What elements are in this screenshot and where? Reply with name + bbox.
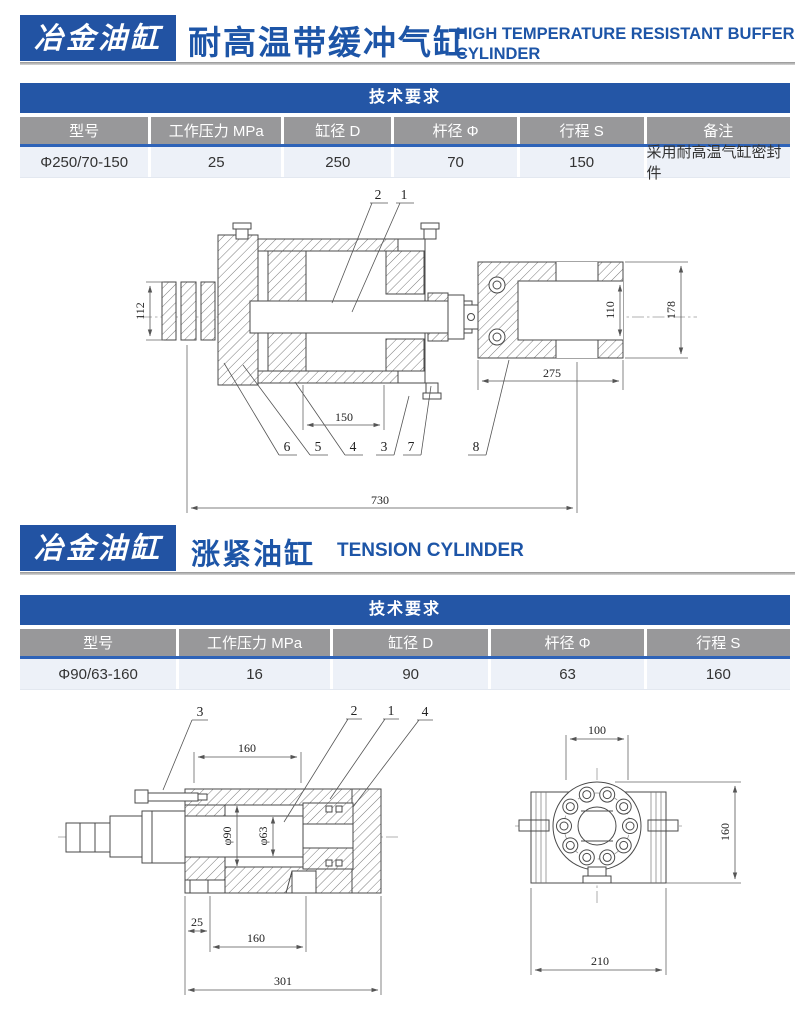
table1-cell-stroke: 150 <box>520 147 644 177</box>
tension-cylinder-drawings: 3 2 1 4 160 φ90 φ63 25 160 301 <box>0 700 810 1005</box>
spec-table-2: 技术要求 型号 工作压力 MPa 缸径 D 杆径 Φ 行程 S Φ90/63-1… <box>20 595 790 690</box>
table2-cell-pressure: 16 <box>179 659 330 689</box>
tension-cylinder-end-view <box>515 768 682 905</box>
spec-table-1: 技术要求 型号 工作压力 MPa 缸径 D 杆径 Φ 行程 S 备注 Φ250/… <box>20 83 790 178</box>
dim-178: 178 <box>664 301 678 319</box>
dim-301: 301 <box>274 974 292 988</box>
table1-cell-model: Φ250/70-150 <box>20 147 148 177</box>
dim-210: 210 <box>591 954 609 968</box>
table1-header-row: 型号 工作压力 MPa 缸径 D 杆径 Φ 行程 S 备注 <box>20 117 790 144</box>
dim-110: 110 <box>603 301 617 319</box>
buffer-cylinder-section-drawing: 2 1 6 5 4 3 7 8 112 110 178 <box>0 180 810 515</box>
dim-150: 150 <box>335 410 353 424</box>
table1-col-pressure: 工作压力 MPa <box>151 117 281 144</box>
dim-730: 730 <box>371 493 389 507</box>
part-label-3: 3 <box>381 439 388 454</box>
dim-top-160: 160 <box>238 741 256 755</box>
table2-cell-rod: 63 <box>491 659 643 689</box>
table2-col-rod: 杆径 Φ <box>491 629 643 656</box>
table2-col-bore: 缸径 D <box>333 629 488 656</box>
dim-bottom-160: 160 <box>247 931 265 945</box>
table2-data-row: Φ90/63-160 16 90 63 160 <box>20 659 790 690</box>
section1-title-cn: 耐高温带缓冲气缸 <box>188 16 468 64</box>
dim-112: 112 <box>133 302 147 320</box>
catalog-page: 冶金油缸 耐高温带缓冲气缸 HIGH TEMPERATURE RESISTANT… <box>0 0 810 1010</box>
dim-275: 275 <box>543 366 561 380</box>
table1-cell-rod: 70 <box>394 147 516 177</box>
table2-title-bar: 技术要求 <box>20 595 790 625</box>
part-label-3: 3 <box>197 704 204 719</box>
dim-rod-63: φ63 <box>256 827 270 846</box>
dim-160: 160 <box>718 823 732 841</box>
part-label-2: 2 <box>351 703 358 718</box>
table2-cell-bore: 90 <box>333 659 488 689</box>
table1-col-bore: 缸径 D <box>284 117 391 144</box>
series-badge-1: 冶金油缸 <box>20 15 176 61</box>
section2-title-en: TENSION CYLINDER <box>337 540 524 562</box>
series-badge-2: 冶金油缸 <box>20 525 176 571</box>
table1-data-row: Φ250/70-150 25 250 70 150 采用耐高温气缸密封件 <box>20 147 790 178</box>
table1-title-bar: 技术要求 <box>20 83 790 113</box>
part-label-5: 5 <box>315 439 322 454</box>
table2-col-stroke: 行程 S <box>647 629 790 656</box>
table1-cell-pressure: 25 <box>151 147 281 177</box>
dim-bore-90: φ90 <box>220 827 234 846</box>
section2-title-cn: 涨紧油缸 <box>191 531 315 573</box>
table1-col-model: 型号 <box>20 117 148 144</box>
table1-col-remark: 备注 <box>647 117 790 144</box>
section1-header-rule <box>20 62 795 65</box>
table1-cell-bore: 250 <box>284 147 391 177</box>
dim-25: 25 <box>191 915 203 929</box>
table1-col-rod: 杆径 Φ <box>394 117 516 144</box>
part-label-2: 2 <box>375 187 382 202</box>
part-label-4: 4 <box>350 439 357 454</box>
part-label-6: 6 <box>284 439 291 454</box>
part-label-7: 7 <box>408 439 415 454</box>
table2-col-pressure: 工作压力 MPa <box>179 629 330 656</box>
part-label-1: 1 <box>388 703 395 718</box>
table2-cell-stroke: 160 <box>647 659 790 689</box>
dim-100: 100 <box>588 723 606 737</box>
section1-title-en: HIGH TEMPERATURE RESISTANT BUFFER CYLIND… <box>456 24 804 64</box>
table1-col-stroke: 行程 S <box>520 117 644 144</box>
part-label-4: 4 <box>422 704 429 719</box>
section2-header-rule <box>20 572 795 575</box>
table2-cell-model: Φ90/63-160 <box>20 659 176 689</box>
table1-cell-remark: 采用耐高温气缸密封件 <box>647 147 790 177</box>
table2-header-row: 型号 工作压力 MPa 缸径 D 杆径 Φ 行程 S <box>20 629 790 656</box>
table2-col-model: 型号 <box>20 629 176 656</box>
part-label-1: 1 <box>401 187 408 202</box>
part-label-8: 8 <box>473 439 480 454</box>
